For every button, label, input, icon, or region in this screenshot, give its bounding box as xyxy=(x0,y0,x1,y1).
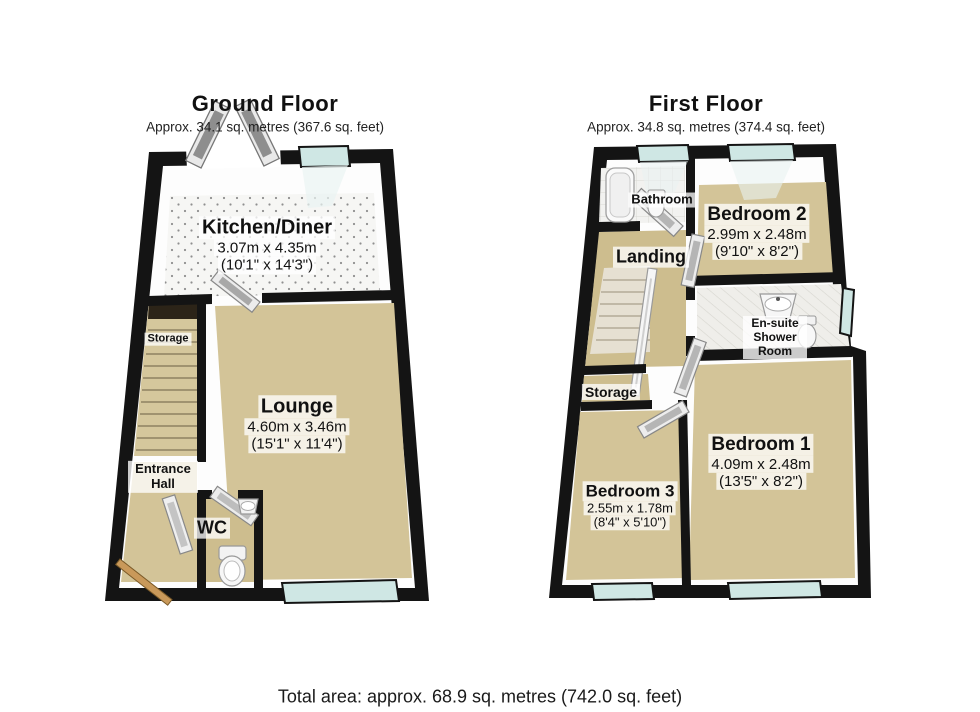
room-label-entrance-hall: Entrance Hall xyxy=(128,461,198,493)
wall-stairs xyxy=(197,296,206,462)
bathroom-window xyxy=(637,145,690,162)
room-dim-metric: 3.07m x 4.35m xyxy=(214,239,319,256)
ensuite-sink xyxy=(760,294,796,318)
floorplan-canvas: Ground Floor Approx. 34.1 sq. metres (36… xyxy=(0,0,980,712)
room-name: Entrance Hall xyxy=(128,461,198,493)
room-name: Storage xyxy=(582,384,640,400)
room-label-bathroom: Bathroom xyxy=(628,193,695,208)
bedroom3-window xyxy=(592,583,654,600)
room-label-storage-first: Storage xyxy=(582,384,640,400)
room-name: En-suite Shower Room xyxy=(743,316,807,359)
room-dim-imperial: (10'1" x 14'3") xyxy=(218,257,316,274)
room-label-storage-ground: Storage xyxy=(145,333,192,346)
room-label-bedroom-1: Bedroom 1 4.09m x 2.48m (13'5" x 8'2") xyxy=(708,434,813,490)
wall-wc-top-b xyxy=(238,490,254,499)
first-floor-area: Approx. 34.8 sq. metres (374.4 sq. feet) xyxy=(587,120,825,135)
room-label-landing: Landing xyxy=(613,247,689,268)
room-dim-metric: 2.99m x 2.48m xyxy=(704,226,809,243)
room-dim-imperial: (8'4" x 5'10") xyxy=(591,516,670,531)
room-label-lounge: Lounge 4.60m x 3.46m (15'1" x 11'4") xyxy=(244,395,349,453)
room-label-wc: WC xyxy=(194,518,230,539)
ground-floor-area: Approx. 34.1 sq. metres (367.6 sq. feet) xyxy=(146,120,384,135)
room-name: Storage xyxy=(145,333,192,346)
room-dim-metric: 4.60m x 3.46m xyxy=(244,418,349,435)
sink xyxy=(238,499,258,514)
room-label-kitchen-diner: Kitchen/Diner 3.07m x 4.35m (10'1" x 14'… xyxy=(199,216,335,274)
room-name: Bathroom xyxy=(628,193,695,208)
floorplan-drawing xyxy=(0,0,980,712)
room-dim-imperial: (15'1" x 11'4") xyxy=(248,436,345,453)
ground-floor-plan xyxy=(105,99,429,605)
room-name: Bedroom 2 xyxy=(704,204,809,226)
ground-floor-title: Ground Floor xyxy=(192,91,339,117)
wall-hall-wc xyxy=(197,490,206,588)
room-dim-metric: 4.09m x 2.48m xyxy=(708,456,813,473)
kitchen-window xyxy=(299,146,350,167)
bedroom2-window xyxy=(728,144,795,161)
ensuite-window xyxy=(840,288,854,336)
room-dim-metric: 2.55m x 1.78m xyxy=(584,501,676,516)
first-floor-title: First Floor xyxy=(649,91,763,117)
room-name: Landing xyxy=(613,247,689,268)
room-label-bedroom-2: Bedroom 2 2.99m x 2.48m (9'10" x 8'2") xyxy=(704,204,809,260)
room-name: WC xyxy=(194,518,230,539)
room-label-bedroom-3: Bedroom 3 2.55m x 1.78m (8'4" x 5'10") xyxy=(583,481,678,530)
lounge-window xyxy=(282,580,399,603)
room-dim-imperial: (9'10" x 8'2") xyxy=(712,243,802,260)
total-area-text: Total area: approx. 68.9 sq. metres (742… xyxy=(278,687,682,708)
room-name: Bedroom 3 xyxy=(583,481,678,501)
room-dim-imperial: (13'5" x 8'2") xyxy=(716,473,806,490)
bedroom1-window xyxy=(728,581,822,599)
room-name: Bedroom 1 xyxy=(708,434,813,456)
room-name: Lounge xyxy=(258,395,336,418)
room-label-ensuite: En-suite Shower Room xyxy=(743,316,807,360)
toilet xyxy=(219,546,246,586)
room-name: Kitchen/Diner xyxy=(199,216,335,239)
